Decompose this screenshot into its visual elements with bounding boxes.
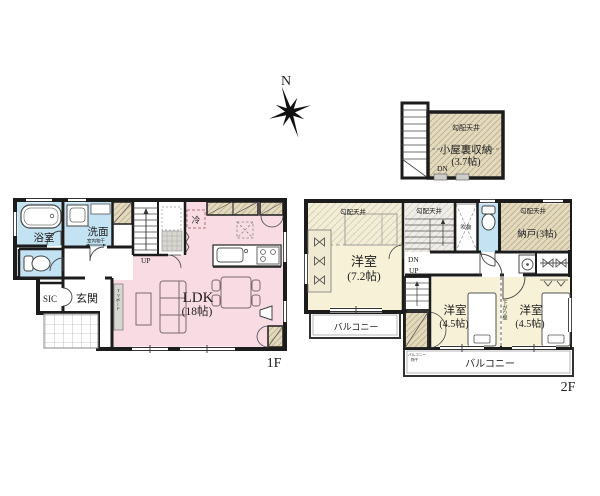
f1-sic-label: SIC — [43, 294, 57, 304]
toilet-fixture — [24, 256, 50, 271]
kitchen-counter — [213, 245, 281, 266]
f2-room1-label: 洋室 — [351, 254, 377, 269]
attic-vent — [456, 174, 469, 180]
tv-board-label: TVボード — [116, 288, 121, 311]
f2-ceiling-label-stairs: 勾配天井 — [416, 206, 443, 215]
f1-floor-label: 1F — [267, 356, 282, 371]
f2-ceiling-label-storage: 勾配天井 — [520, 206, 547, 215]
f1-entry-label: 玄関 — [76, 291, 98, 305]
fridge-label: 冷 — [192, 215, 201, 225]
f1-bath-label: 浴室 — [34, 231, 55, 244]
f1-indoor-dry-label: 室内物干 — [87, 238, 105, 245]
attic-room-size: (3.7帖) — [451, 155, 480, 168]
f2-floor-label: 2F — [561, 380, 576, 395]
compass: N — [261, 74, 320, 144]
f2-lowered-wall-label: 下がり壁 — [502, 300, 508, 320]
f2-room3-size: (4.5帖) — [515, 317, 544, 330]
washing-machine — [519, 255, 536, 273]
f2-room2-size: (4.5帖) — [439, 317, 468, 330]
attic-stairs — [402, 103, 428, 178]
f2-storage-label: 納戸(3帖) — [517, 228, 557, 240]
f2-room1-size: (7.2帖) — [347, 269, 381, 283]
floor-2-plan: 勾配天井 勾配天井 勾配天井 洋室 (7.2帖) DN UP 吹抜 納戸(3帖)… — [304, 199, 576, 396]
compass-north-label: N — [281, 74, 291, 89]
f2-ceiling-label-room1: 勾配天井 — [340, 207, 367, 216]
f2-toilet-fixture — [482, 206, 495, 230]
f2-balcony-dry-label-2: 物干 — [411, 357, 419, 362]
f2-balcony-dry-label-1: バルコニー — [408, 353, 426, 357]
f1-ldk-label: LDK — [183, 290, 214, 306]
compass-star-icon — [261, 80, 320, 145]
attic-vent — [434, 174, 447, 180]
attic-ceiling-label: 勾配天井 — [452, 123, 480, 132]
f1-ldk-size: (18帖) — [182, 304, 213, 318]
f2-room2-label: 洋室 — [444, 303, 467, 317]
f1-wash-label: 洗面 — [88, 226, 109, 238]
f2-balcony-side-label: バルコニー — [334, 322, 379, 332]
attic-room-label: 小屋裏収納 — [440, 143, 493, 156]
f1-up-label: UP — [141, 256, 151, 265]
f2-balcony-south-label: バルコニー — [465, 358, 515, 370]
floor-1-plan: UP 冷 — [13, 198, 288, 372]
bed — [468, 293, 496, 346]
floor-plan-image: N 勾配天井 小屋裏収納 (3.7帖) DN — [0, 0, 600, 496]
f2-dn-label: DN — [408, 255, 419, 264]
wash-counter — [91, 204, 110, 214]
f2-attic-stairs — [405, 277, 430, 310]
f2-room3-label: 洋室 — [520, 303, 543, 317]
f2-bedroom1-closet — [308, 230, 331, 292]
entrance-porch — [44, 314, 98, 348]
bathtub — [21, 205, 61, 228]
f2-void-label: 吹抜 — [460, 223, 472, 231]
attic-dn-label: DN — [437, 164, 448, 173]
attic-plan: 勾配天井 小屋裏収納 (3.7帖) DN — [402, 103, 503, 180]
f2-up-label: UP — [409, 266, 419, 275]
bed — [542, 293, 570, 346]
